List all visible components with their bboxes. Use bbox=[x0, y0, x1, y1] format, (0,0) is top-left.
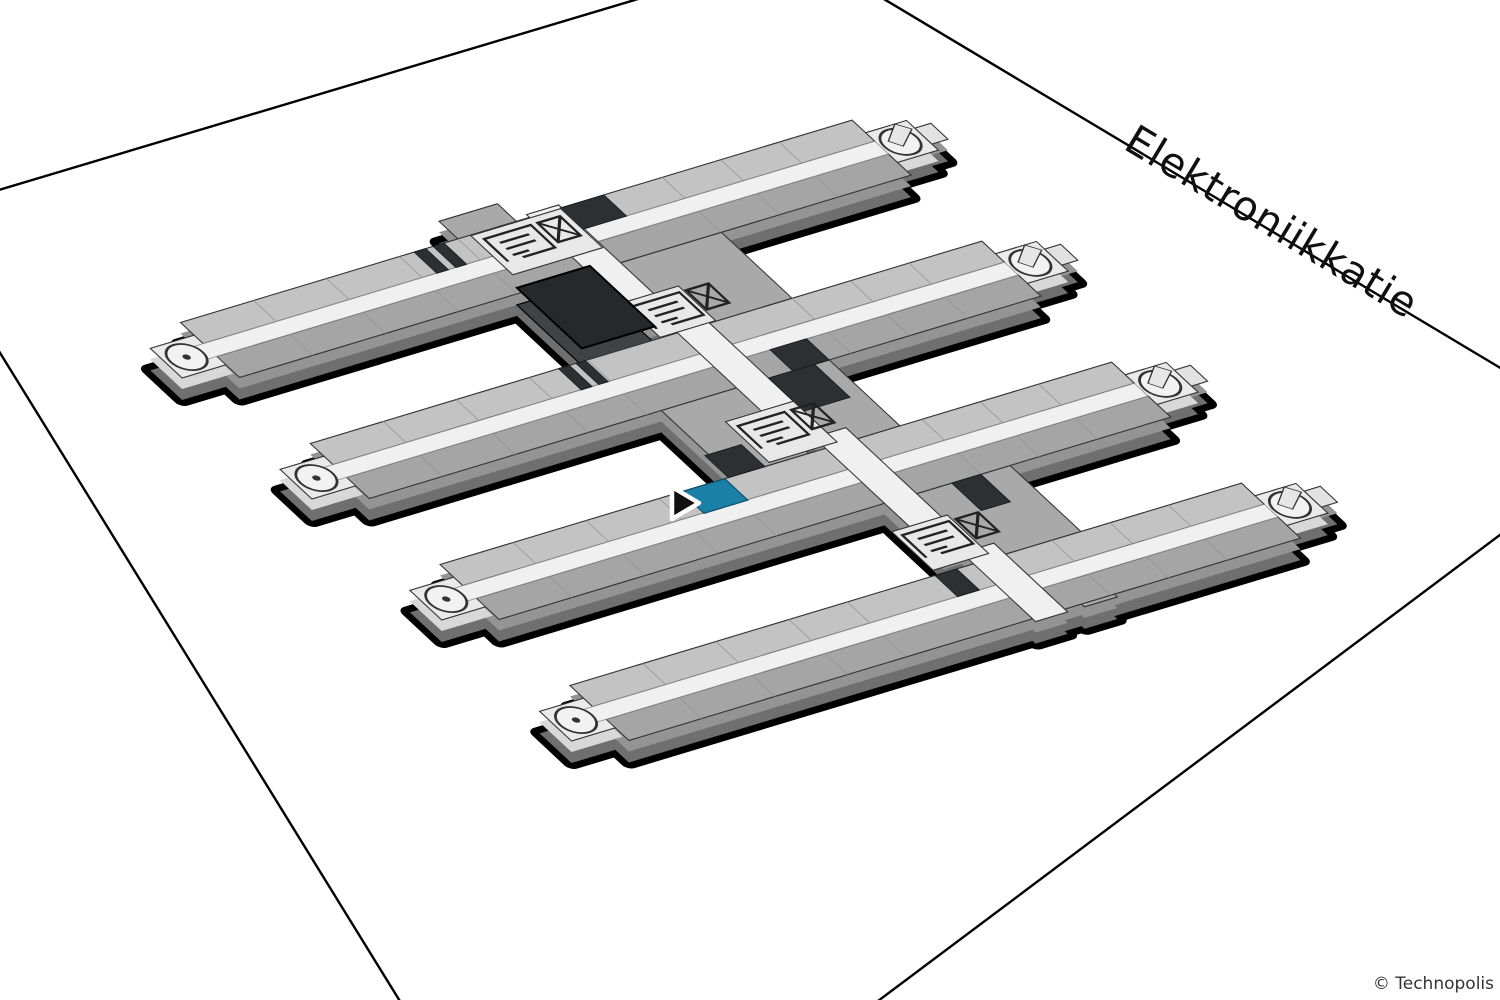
campus-map: Elektroniikkatie bbox=[0, 0, 1500, 1000]
copyright-label: © Technopolis bbox=[1373, 974, 1494, 994]
map-viewport: Elektroniikkatie bbox=[0, 0, 1500, 1000]
